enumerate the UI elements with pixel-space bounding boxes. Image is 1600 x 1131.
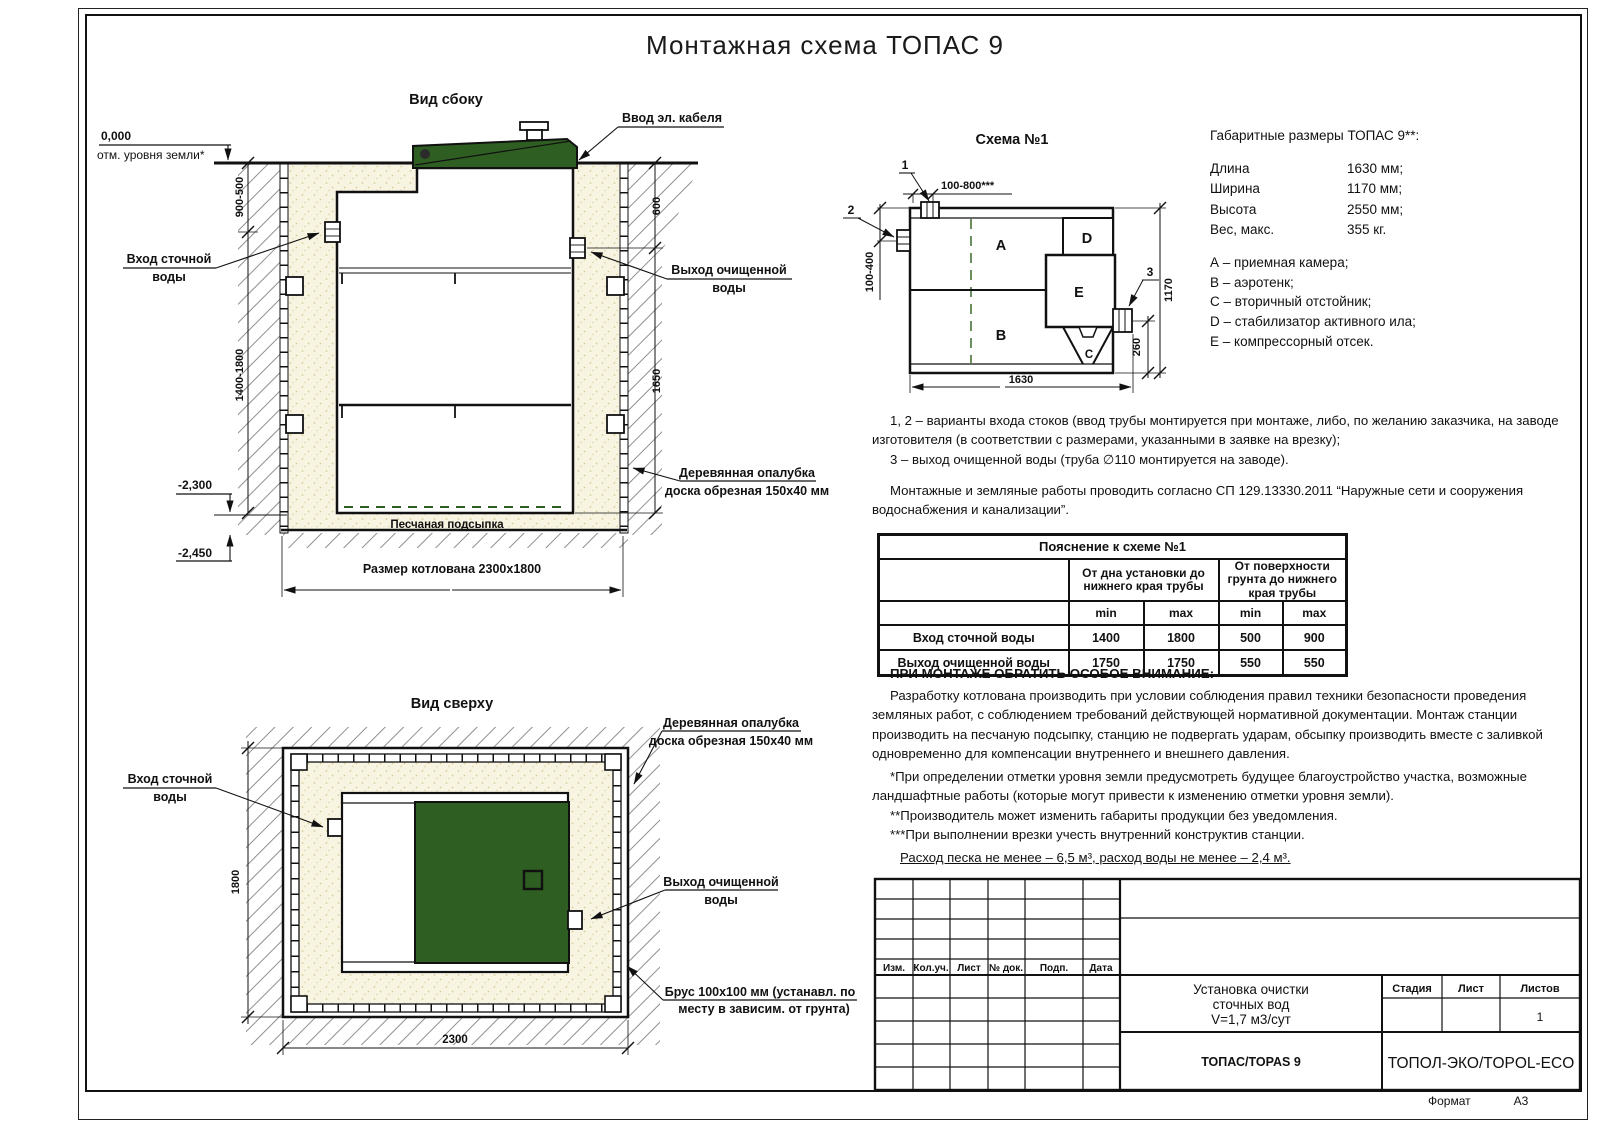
- doc-title-line-3: V=1,7 м3/сут: [1211, 1012, 1291, 1027]
- dimension-row: Высота2550 мм;: [1210, 200, 1570, 220]
- formwork-label-1: Деревянная опалубка: [679, 466, 816, 480]
- max-header: max: [1144, 601, 1219, 625]
- footnote-2: **Производитель может изменить габариты …: [872, 806, 1560, 825]
- legend-item: С – вторичный отстойник;: [1210, 292, 1570, 312]
- doc-title-line-1: Установка очистки: [1193, 982, 1309, 997]
- dimension-row: Ширина1170 мм;: [1210, 179, 1570, 199]
- callout-2: 2: [848, 203, 855, 217]
- inlet-label-2: воды: [152, 270, 186, 284]
- chamber-b: B: [996, 328, 1006, 344]
- outlet-coupling: [568, 911, 582, 929]
- lid-vent: [524, 871, 542, 889]
- format-value: А3: [1514, 1094, 1529, 1108]
- footnote-3: ***При выполнении врезки учесть внутренн…: [872, 825, 1560, 844]
- outlet-label-1: Выход очищенной: [663, 875, 778, 889]
- callout-1: 1: [902, 158, 909, 172]
- title-block-headers: Изм. Кол.уч. Лист № док. Подп. Дата: [883, 963, 1113, 974]
- table-row: Вход сточной воды 1400 1800 500 900: [879, 625, 1347, 650]
- zero-mark: 0,000: [101, 129, 131, 143]
- mark-2300: -2,300: [178, 478, 212, 492]
- sheet-label: Лист: [1458, 983, 1485, 995]
- chamber-c: C: [1085, 349, 1093, 361]
- overall-dimensions-title: Габаритные размеры ТОПАС 9**:: [1210, 128, 1570, 143]
- outlet-marker: [1113, 309, 1132, 332]
- formwork-label-2: доска обрезная 150х40 мм: [665, 484, 829, 498]
- dim-600: 600: [651, 197, 663, 215]
- dim-1630: 1630: [1009, 374, 1033, 386]
- corner-beam: [605, 754, 621, 770]
- col-ndok: № док.: [989, 963, 1023, 974]
- dim-100-800: 100-800***: [941, 180, 995, 192]
- company-name: ТОПОЛ-ЭКО/TOPOL-ECO: [1388, 1055, 1575, 1072]
- attention-title: ПРИ МОНТАЖЕ ОБРАТИТЬ ОСОБОЕ ВНИМАНИЕ:: [890, 666, 1214, 681]
- attention-footnotes: *При определении отметки уровня земли пр…: [872, 767, 1560, 844]
- sheets-label: Листов: [1520, 983, 1560, 995]
- inlet-label-1: Вход сточной: [128, 772, 213, 786]
- format-row: Формат А3: [1428, 1094, 1528, 1108]
- doc-title-line-2: сточных вод: [1213, 997, 1290, 1012]
- document-title: Установка очистки сточных вод V=1,7 м3/с…: [1193, 982, 1309, 1027]
- pit-size-label: Размер котлована 2300х1800: [363, 562, 541, 576]
- min-header: min: [1219, 601, 1283, 625]
- schema-drawing: A B C D E 1 2 3 100-800*** 100-400 1170: [828, 126, 1208, 402]
- vent-cap: [520, 122, 548, 130]
- max-header: max: [1283, 601, 1347, 625]
- overall-dimensions-block: Габаритные размеры ТОПАС 9**: Длина1630 …: [1210, 128, 1570, 351]
- inlet-variant-1: [921, 202, 939, 218]
- inlet-coupling: [328, 819, 342, 836]
- side-view-drawing: 900-500 1400-1800 0,000 отм. уровня земл…: [90, 82, 860, 627]
- dimension-row: Длина1630 мм;: [1210, 159, 1570, 179]
- tank-body: [337, 168, 573, 513]
- top-view-drawing: 1800 2300 Вход сточной воды Деревянная о…: [90, 678, 880, 1078]
- corner-beam: [605, 996, 621, 1012]
- model-name: ТОПАС/TOPAS 9: [1201, 1055, 1301, 1069]
- stage-label: Стадия: [1392, 983, 1432, 995]
- outlet-coupling: [570, 238, 585, 258]
- attention-paragraph: Разработку котлована производить при усл…: [872, 686, 1560, 763]
- dim-1800: 1800: [230, 870, 242, 894]
- dim-1650: 1650: [651, 369, 663, 393]
- dim-100-400: 100-400: [864, 252, 876, 292]
- formwork-callout: Деревянная опалубка доска обрезная 150х4…: [633, 466, 829, 498]
- beam-label-1: Брус 100х100 мм (устанавл. по: [665, 985, 856, 999]
- format-label: Формат: [1428, 1094, 1471, 1108]
- chamber-legend: А – приемная камера; В – аэротенк; С – в…: [1210, 253, 1570, 351]
- vent-pipe: [527, 130, 542, 140]
- side-view-title: Вид сбоку: [409, 92, 483, 108]
- sheets-value: 1: [1537, 1010, 1544, 1024]
- cable-label: Ввод эл. кабеля: [622, 111, 722, 125]
- cable-callout: Ввод эл. кабеля: [579, 111, 724, 160]
- dim-900-500: 900-500: [234, 177, 246, 217]
- legend-item: Е – компрессорный отсек.: [1210, 332, 1570, 352]
- tank-lid: [415, 802, 569, 963]
- tank-top: [328, 793, 582, 972]
- col-koluch: Кол.уч.: [913, 963, 948, 974]
- outlet-label-2: воды: [704, 893, 738, 907]
- inlet-label-1: Вход сточной: [127, 252, 212, 266]
- dim-2300: 2300: [442, 1034, 468, 1046]
- beam-label-2: месту в зависим. от грунта): [678, 1002, 850, 1016]
- note-variants-12: 1, 2 – варианты входа стоков (ввод трубы…: [872, 411, 1560, 450]
- col-list: Лист: [957, 963, 981, 974]
- zero-note: отм. уровня земли*: [97, 148, 205, 162]
- zero-level-mark: 0,000 отм. уровня земли*: [97, 129, 231, 162]
- table-corner-cell: [879, 559, 1069, 601]
- notes-block: 1, 2 – варианты входа стоков (ввод трубы…: [872, 411, 1560, 519]
- table-group-header-1: От дна установки до нижнего края трубы: [1069, 559, 1219, 601]
- note-mounting-works: Монтажные и земляные работы проводить со…: [872, 481, 1560, 520]
- chamber-a: A: [996, 238, 1007, 254]
- corner-beam: [291, 754, 307, 770]
- table-title: Пояснение к схеме №1: [879, 535, 1347, 560]
- inlet-label-2: воды: [153, 790, 187, 804]
- legend-item: А – приемная камера;: [1210, 253, 1570, 273]
- chamber-e: E: [1074, 285, 1084, 301]
- inlet-coupling: [325, 222, 340, 242]
- outlet-label-2: воды: [712, 281, 746, 295]
- callout-3: 3: [1147, 265, 1154, 279]
- outlet-label-1: Выход очищенной: [671, 263, 786, 277]
- formwork-callout: Деревянная опалубка доска обрезная 150х4…: [634, 716, 813, 784]
- formwork-label-1: Деревянная опалубка: [663, 716, 800, 730]
- table-group-header-2: От поверхности грунта до нижнего края тр…: [1219, 559, 1347, 601]
- stage-sheet-table: Стадия Лист Листов 1: [1392, 983, 1560, 1024]
- corner-beam: [291, 996, 307, 1012]
- mark-2450: -2,450: [178, 546, 212, 560]
- page-title: Монтажная схема ТОПАС 9: [595, 30, 1055, 61]
- legend-item: В – аэротенк;: [1210, 273, 1570, 293]
- dimension-row: Вес, макс.355 кг.: [1210, 220, 1570, 240]
- sand-label: Песчаная подсыпка: [390, 519, 504, 531]
- title-block: Изм. Кол.уч. Лист № док. Подп. Дата Уста…: [873, 877, 1585, 1093]
- dim-1400-1800: 1400-1800: [234, 349, 246, 402]
- min-header: min: [1069, 601, 1144, 625]
- col-izm: Изм.: [883, 963, 905, 974]
- legend-item: D – стабилизатор активного ила;: [1210, 312, 1570, 332]
- inlet-variant-2: [897, 230, 910, 251]
- tank-lid: [413, 122, 577, 168]
- schema-title: Схема №1: [976, 132, 1049, 148]
- top-view-title: Вид сверху: [411, 696, 493, 712]
- footnote-1: *При определении отметки уровня земли пр…: [872, 767, 1560, 806]
- beam-callout: Брус 100х100 мм (устанавл. по месту в за…: [627, 966, 857, 1016]
- col-podp: Подп.: [1040, 963, 1069, 974]
- consumption-note: Расход песка не менее – 6,5 м³, расход в…: [900, 850, 1291, 865]
- formwork-label-2: доска обрезная 150х40 мм: [649, 734, 813, 748]
- dim-1170: 1170: [1163, 278, 1175, 302]
- chamber-d: D: [1082, 231, 1092, 247]
- explanation-table: Пояснение к схеме №1 От дна установки до…: [877, 533, 1348, 677]
- note-variant-3: 3 – выход очищенной воды (труба ∅110 мон…: [872, 450, 1560, 469]
- col-data: Дата: [1089, 963, 1113, 974]
